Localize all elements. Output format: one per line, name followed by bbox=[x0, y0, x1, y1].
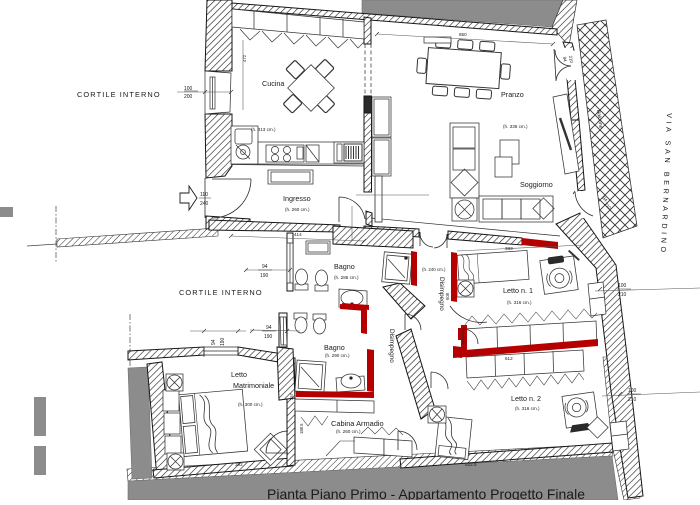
svg-text:(h. 260 cm.): (h. 260 cm.) bbox=[336, 429, 361, 434]
svg-text:(h. 336 cm.): (h. 336 cm.) bbox=[503, 124, 528, 129]
svg-text:383: 383 bbox=[505, 246, 513, 251]
svg-text:(h. 260 cm.): (h. 260 cm.) bbox=[285, 207, 310, 212]
svg-text:(h. 300 cm.): (h. 300 cm.) bbox=[238, 402, 263, 407]
svg-text:(h. 290 cm.): (h. 290 cm.) bbox=[325, 353, 350, 358]
svg-text:CORTILE INTERNO: CORTILE INTERNO bbox=[179, 288, 263, 297]
svg-text:Ingresso: Ingresso bbox=[283, 194, 311, 203]
svg-text:512: 512 bbox=[505, 356, 513, 361]
svg-text:100: 100 bbox=[184, 86, 193, 92]
svg-text:414: 414 bbox=[294, 232, 302, 237]
svg-text:(h. 286 cm.): (h. 286 cm.) bbox=[334, 275, 359, 280]
svg-text:Letto n. 1: Letto n. 1 bbox=[503, 286, 533, 295]
svg-text:Pianta Piano Primo - Appart: Pianta Piano Primo - Appartamento Proget… bbox=[267, 486, 585, 500]
svg-text:Disimpegno: Disimpegno bbox=[388, 329, 395, 363]
svg-text:200: 200 bbox=[184, 94, 193, 100]
svg-text:Disimpegno: Disimpegno bbox=[438, 277, 445, 311]
svg-text:472: 472 bbox=[242, 54, 247, 62]
svg-text:Letto: Letto bbox=[231, 370, 247, 379]
svg-text:Pranzo: Pranzo bbox=[501, 90, 524, 99]
svg-text:(h. 316 cm.): (h. 316 cm.) bbox=[507, 300, 532, 305]
svg-text:100: 100 bbox=[618, 283, 627, 289]
svg-text:850: 850 bbox=[459, 32, 467, 37]
svg-text:Cabina Armadio: Cabina Armadio bbox=[331, 419, 384, 428]
svg-text:100: 100 bbox=[628, 388, 637, 394]
svg-text:522.5: 522.5 bbox=[465, 462, 477, 467]
svg-text:190: 190 bbox=[260, 273, 269, 279]
svg-text:210: 210 bbox=[618, 292, 627, 298]
svg-text:94: 94 bbox=[266, 325, 272, 331]
svg-text:(h. 316 cm.): (h. 316 cm.) bbox=[515, 406, 540, 411]
svg-text:188.5: 188.5 bbox=[299, 423, 304, 434]
svg-text:392: 392 bbox=[235, 462, 243, 467]
svg-text:Cucina: Cucina bbox=[262, 79, 284, 88]
svg-text:Soggiorno: Soggiorno bbox=[520, 180, 553, 189]
svg-text:110: 110 bbox=[200, 192, 208, 198]
svg-text:Bagno: Bagno bbox=[334, 262, 355, 271]
svg-text:(h. 313 cm.): (h. 313 cm.) bbox=[251, 127, 276, 132]
svg-text:608: 608 bbox=[445, 292, 450, 300]
svg-text:(h. 240 cm.): (h. 240 cm.) bbox=[422, 267, 446, 272]
svg-text:94: 94 bbox=[211, 339, 217, 345]
svg-text:Letto n. 2: Letto n. 2 bbox=[511, 394, 541, 403]
svg-text:357: 357 bbox=[289, 392, 294, 400]
svg-text:Bagno: Bagno bbox=[324, 343, 345, 352]
svg-text:210: 210 bbox=[628, 397, 637, 403]
svg-text:190: 190 bbox=[220, 337, 226, 346]
svg-text:94: 94 bbox=[262, 264, 268, 270]
svg-text:Matrimoniale: Matrimoniale bbox=[233, 381, 274, 390]
svg-text:190: 190 bbox=[264, 334, 273, 340]
svg-text:240: 240 bbox=[200, 201, 209, 207]
svg-text:CORTILE INTERNO: CORTILE INTERNO bbox=[77, 90, 161, 99]
